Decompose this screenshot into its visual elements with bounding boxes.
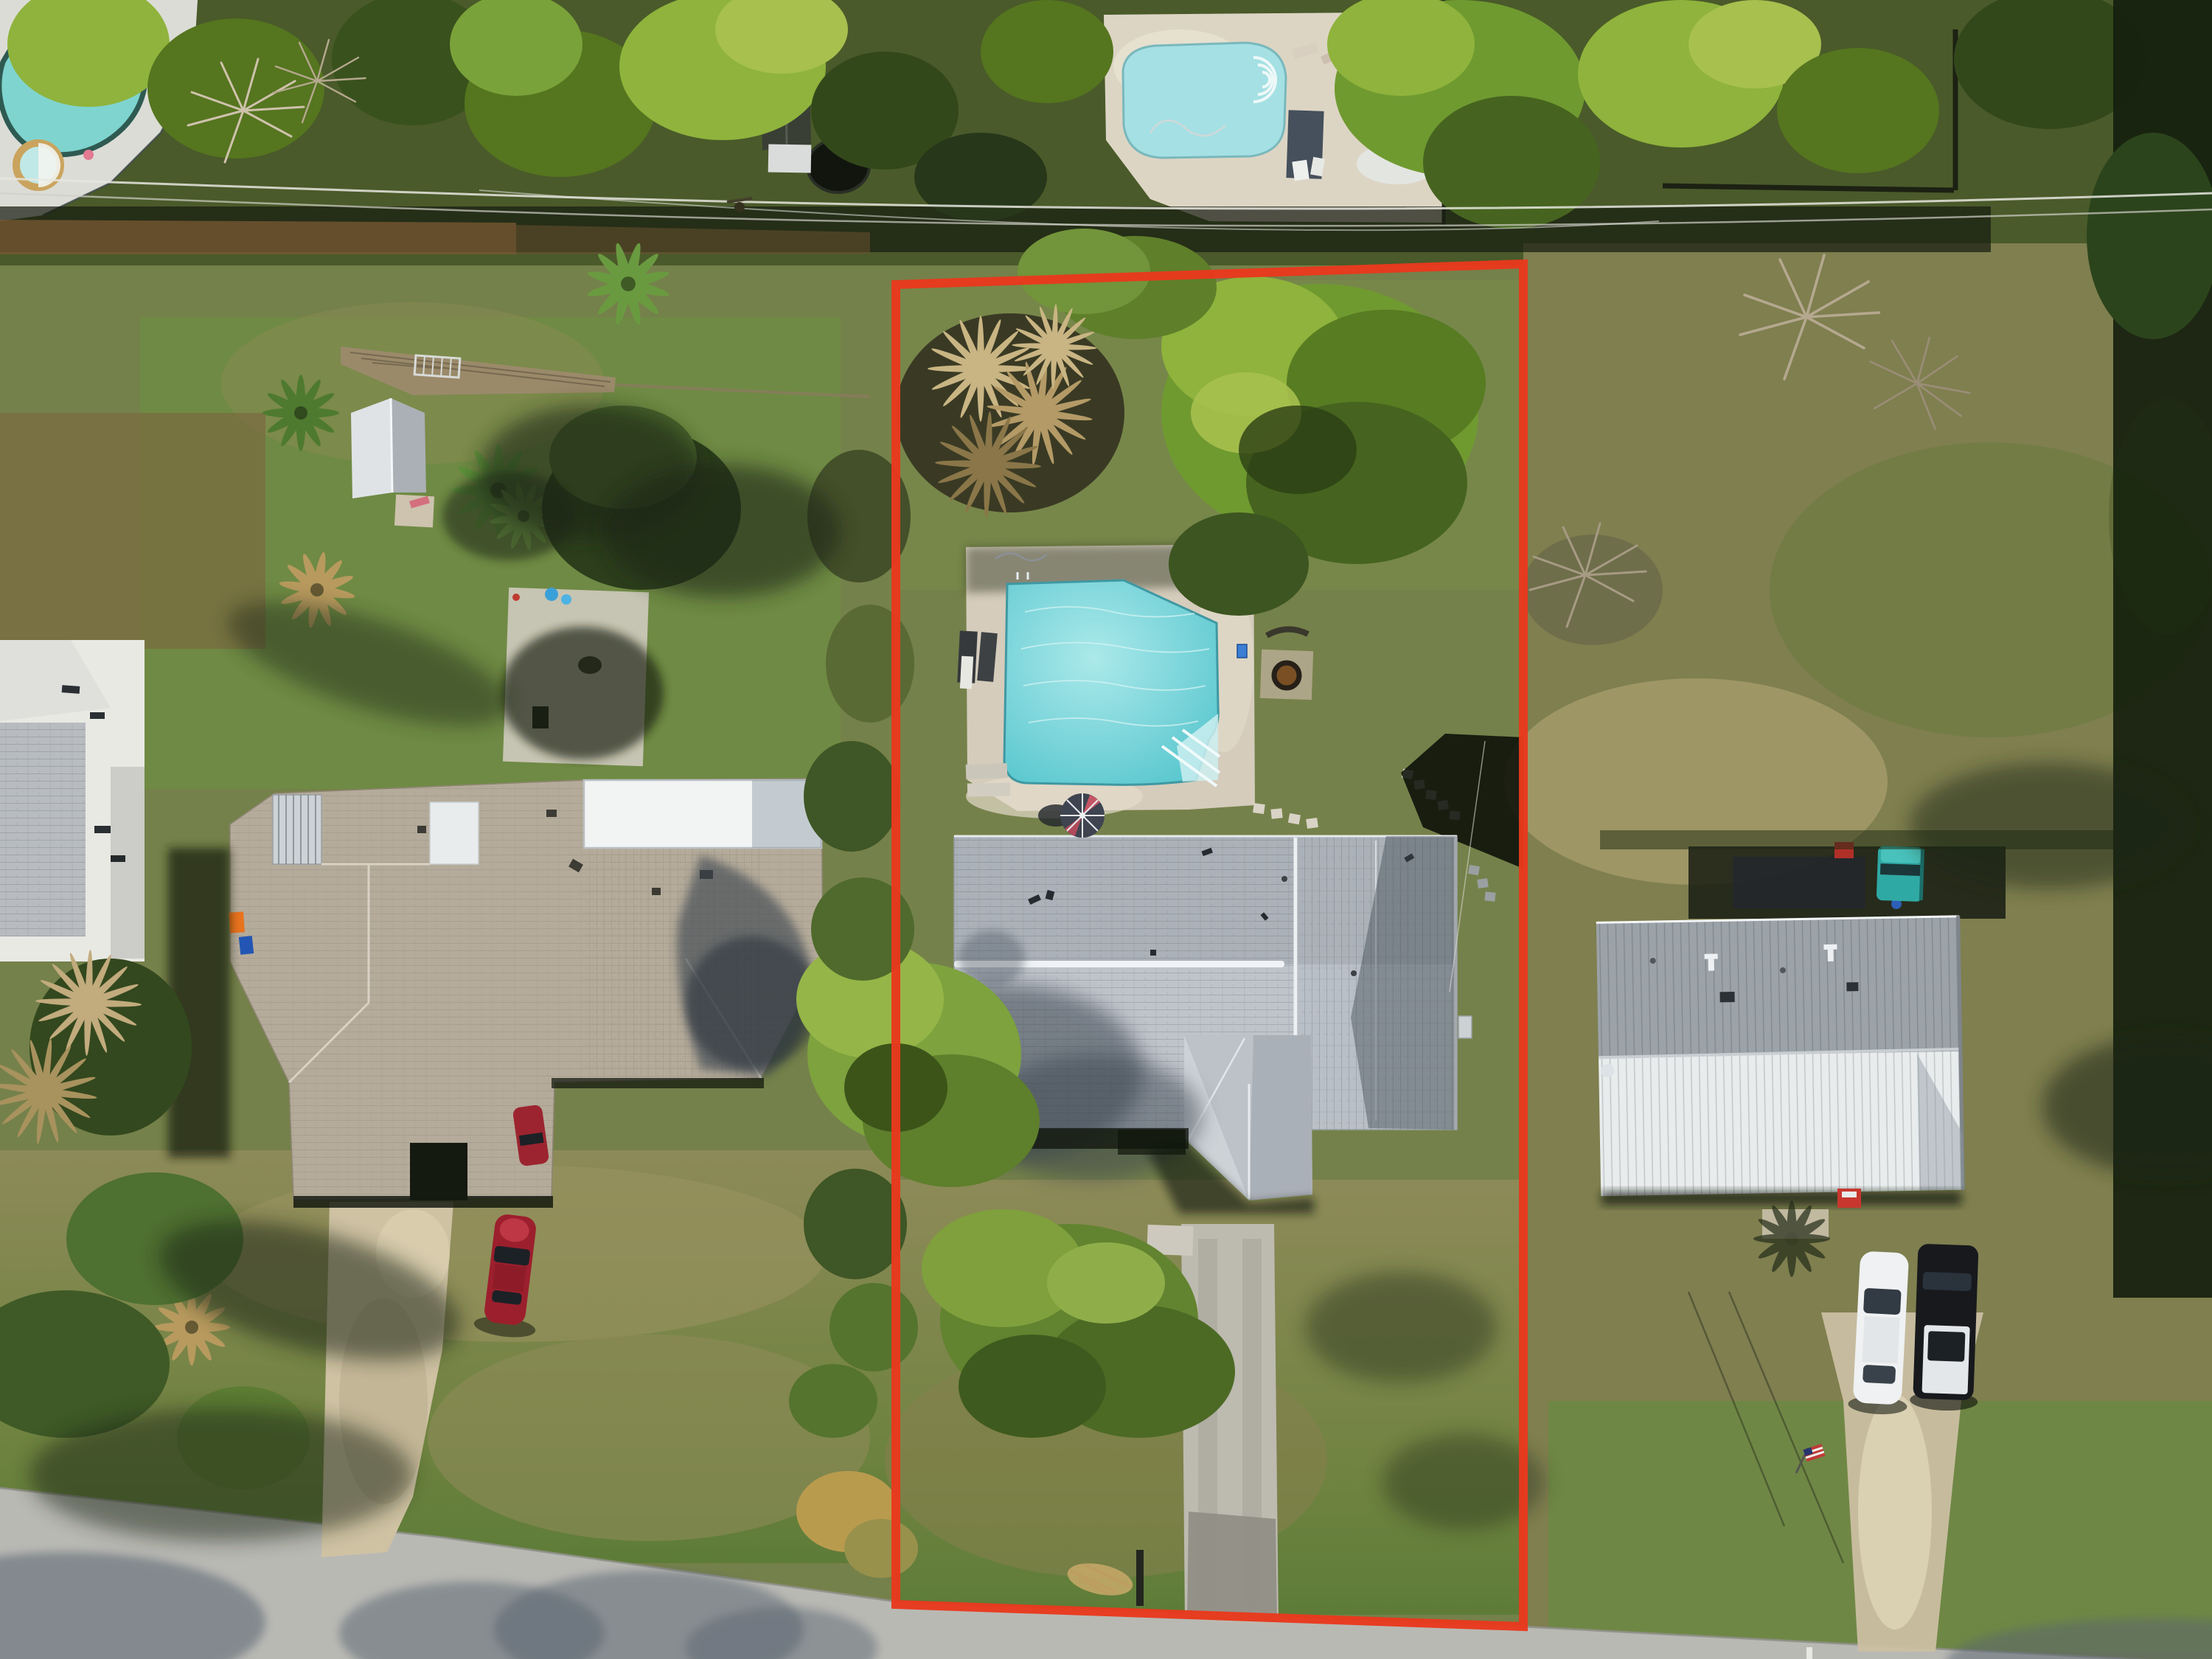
roof-vent-dark	[1846, 982, 1858, 991]
windshield	[1863, 1288, 1902, 1315]
white-chair	[1292, 160, 1309, 181]
mobile-home	[1596, 916, 1964, 1197]
black-suv	[1910, 1243, 1983, 1411]
asphalt-patch	[1187, 1512, 1277, 1622]
teal-truck	[1877, 846, 1925, 902]
blue-recycling-bin	[239, 936, 254, 955]
white-trailer	[768, 144, 812, 173]
trailer	[1733, 857, 1865, 908]
utility-pole	[734, 202, 745, 212]
orange-recycling-bin	[229, 911, 245, 933]
backyard-fire-pit	[1274, 663, 1299, 688]
street-marker-post	[1806, 1647, 1812, 1659]
pool-float	[545, 588, 558, 601]
bare-dirt	[0, 413, 265, 649]
pool-float	[561, 594, 571, 605]
aerial-photo-canvas	[0, 0, 2212, 1659]
mailbox-post	[1136, 1550, 1144, 1606]
aerial-photo	[0, 0, 2212, 1659]
corrugated-panel-roof	[273, 795, 321, 864]
entry-shadow	[1118, 1130, 1186, 1155]
windshield	[1922, 1272, 1972, 1291]
roof-vent-dark	[1719, 992, 1734, 1002]
rear-window	[1863, 1365, 1896, 1384]
dirt-strip	[0, 220, 516, 254]
white-towel	[960, 656, 973, 689]
pink-float	[83, 150, 94, 160]
patio-shade	[501, 627, 664, 759]
entry-shadow	[410, 1143, 467, 1200]
shed-ridge	[391, 398, 392, 493]
far-left-white-house	[0, 640, 145, 961]
light-lounger	[967, 782, 1010, 796]
white-flat-roof	[430, 802, 479, 864]
tailgate-window	[1927, 1331, 1965, 1362]
light-lounger	[966, 763, 1008, 779]
cooler	[1837, 1189, 1861, 1208]
windshield	[1880, 863, 1920, 876]
pool-skimmer	[1237, 644, 1247, 658]
ac-unit	[1458, 1016, 1472, 1038]
